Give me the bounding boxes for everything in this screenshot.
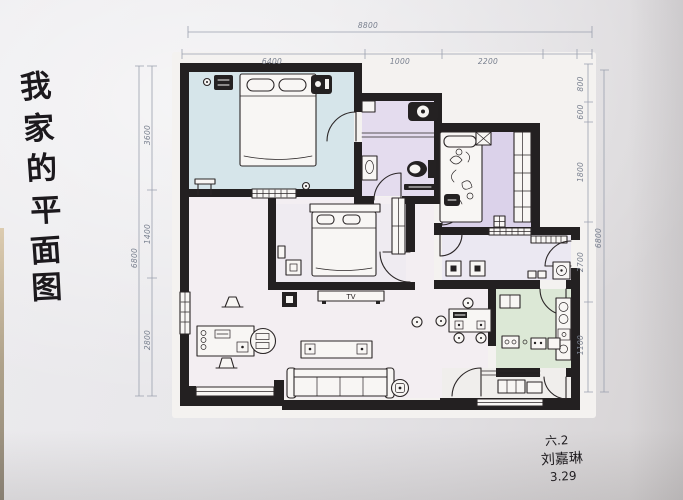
window-second-bedroom [489,228,531,235]
dim-right-seg3: 1800 [576,162,585,182]
dim-top-seg3: 2200 [478,57,498,66]
pillow [444,136,476,147]
pillow [343,215,360,224]
kitchen-appliance [548,338,560,349]
side-table [286,260,301,275]
dim-right-seg2: 600 [576,104,585,119]
title-char: 的 [25,150,58,188]
dim-top-seg2: 1000 [390,57,410,66]
dim-top-total: 8800 [358,21,378,30]
dim-left-seg1: 3600 [143,125,152,145]
stove [502,336,519,348]
window-bottom-left [196,387,274,396]
window-living-left [180,292,190,334]
pillow [247,79,274,91]
pillow [279,79,306,91]
signature-class: 六.2 [545,433,569,448]
wall-unit [278,246,285,258]
dim-right-seg5: 1100 [576,335,585,355]
title-char: 平 [29,192,62,230]
window-balcony-bottom [477,399,543,406]
tv-label: TV [345,293,355,301]
storage-unit [527,382,542,393]
dim-left-total: 6800 [130,248,139,268]
title-char: 我 [19,68,53,107]
window-master-bedroom [252,189,296,198]
nightstand [214,75,233,90]
signature-name: 刘嘉琳 [541,450,584,468]
storage-unit [498,380,525,393]
title-char: 面 [29,232,62,270]
sofa [287,368,394,398]
kitchen-appliance [531,338,546,349]
dim-right-seg4: 2700 [576,252,585,272]
stool [219,358,234,368]
dim-right-total: 6800 [594,228,603,248]
title-char: 家 [22,110,55,148]
floor-plan-photo: TV [0,0,683,500]
hall-box [538,271,546,278]
washbasin [362,156,377,180]
shoe-rack-hatch [531,236,567,243]
shelf [362,101,375,112]
signature-block: 六.2 刘嘉琳 3.29 [540,432,585,484]
dim-left-seg3: 2800 [143,330,152,350]
title-char: 图 [30,269,63,307]
floor-plan-drawing: TV [0,0,683,500]
signature-date: 3.29 [549,469,576,484]
round-table [251,329,276,354]
page-title: 我 家 的 平 面 图 [19,68,64,307]
dim-right-seg1: 800 [576,76,585,91]
dim-top-seg1: 6400 [262,57,282,66]
headboard-shelf [310,204,380,212]
toilet-tank [428,160,436,178]
dim-left-seg2: 1400 [143,224,152,244]
pillow [317,215,334,224]
furniture-balcony [498,380,542,393]
hall-box [528,271,536,278]
